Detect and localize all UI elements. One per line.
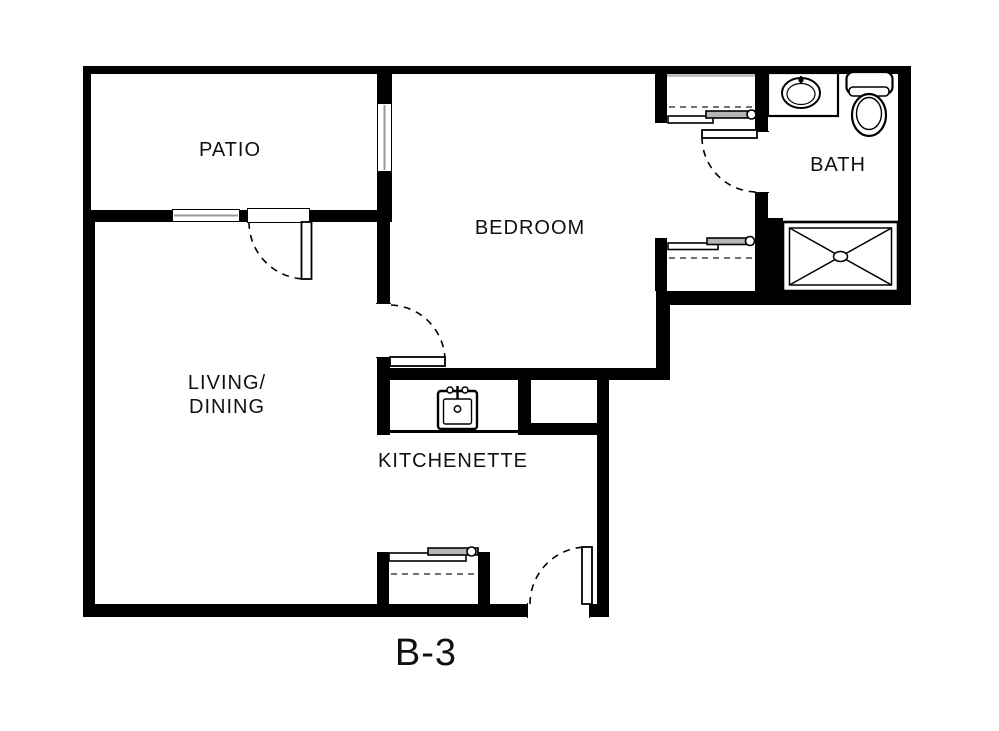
bath-door <box>702 130 757 192</box>
sliding-doors-upper-closet <box>668 110 757 123</box>
shower-pan <box>783 222 898 291</box>
living-label-line1: LIVING/ <box>188 372 266 394</box>
floor-plan: PATIO BEDROOM BATH LIVING/ DINING KITCHE… <box>0 0 999 731</box>
bathroom-sink <box>768 73 838 116</box>
plan-code-label: B-3 <box>346 632 506 675</box>
room-label-kitchenette: KITCHENETTE <box>353 450 553 473</box>
living-label-line2: DINING <box>147 395 307 419</box>
bedroom-door <box>390 305 445 366</box>
room-label-bedroom: BEDROOM <box>450 217 610 240</box>
sliding-doors-lower-closet <box>668 237 755 250</box>
room-label-patio: PATIO <box>150 139 310 162</box>
patio-door <box>249 222 312 279</box>
fixtures-layer <box>0 0 999 731</box>
toilet <box>847 72 893 136</box>
kitchen-sink <box>438 386 477 429</box>
entry-door <box>530 547 592 604</box>
sliding-doors-entry-closet <box>389 547 478 561</box>
room-label-living-dining: LIVING/ DINING <box>147 371 307 419</box>
room-label-bath: BATH <box>778 154 898 177</box>
